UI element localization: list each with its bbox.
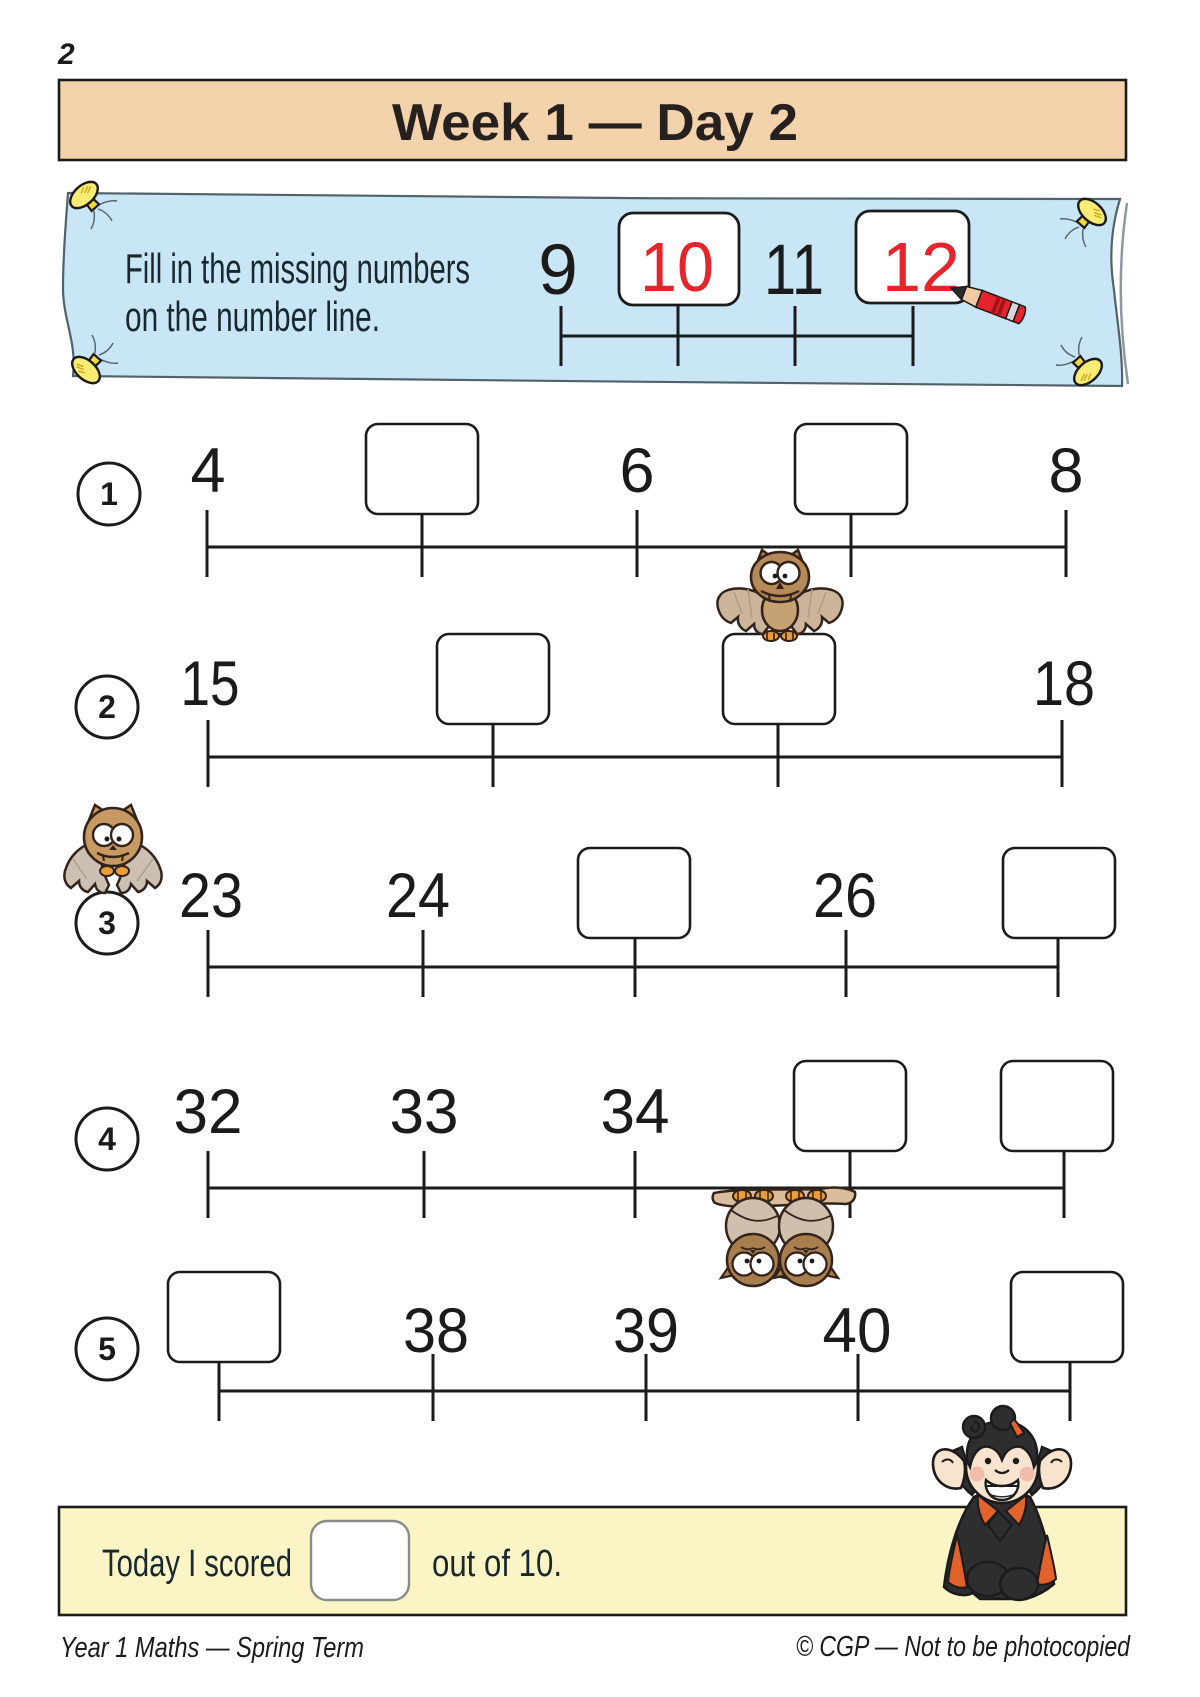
svg-text:4: 4 (98, 1121, 116, 1157)
svg-text:32: 32 (174, 1077, 243, 1147)
svg-text:11: 11 (764, 231, 824, 310)
svg-text:39: 39 (613, 1296, 679, 1366)
svg-text:4: 4 (190, 436, 225, 506)
svg-text:2: 2 (57, 38, 75, 71)
svg-text:24: 24 (386, 861, 450, 931)
svg-text:38: 38 (403, 1296, 469, 1366)
svg-text:3: 3 (98, 905, 116, 941)
svg-text:26: 26 (813, 861, 877, 931)
svg-text:Year 1 Maths — Spring Term: Year 1 Maths — Spring Term (60, 1632, 364, 1664)
svg-text:on the number line.: on the number line. (125, 293, 380, 340)
svg-text:out of 10.: out of 10. (432, 1543, 562, 1585)
svg-text:12: 12 (882, 228, 960, 306)
svg-text:8: 8 (1048, 436, 1083, 506)
svg-text:23: 23 (179, 861, 243, 931)
svg-text:18: 18 (1033, 649, 1095, 719)
svg-text:34: 34 (601, 1077, 670, 1147)
svg-text:1: 1 (100, 476, 118, 512)
svg-text:9: 9 (538, 231, 578, 310)
svg-text:Today I scored: Today I scored (102, 1543, 292, 1585)
svg-text:© CGP — Not to be photocopied: © CGP — Not to be photocopied (796, 1631, 1131, 1663)
svg-text:15: 15 (181, 649, 240, 719)
svg-text:40: 40 (823, 1296, 892, 1366)
svg-text:2: 2 (98, 689, 116, 725)
svg-text:33: 33 (390, 1077, 459, 1147)
svg-text:5: 5 (98, 1331, 116, 1367)
svg-text:6: 6 (619, 436, 654, 506)
svg-text:Fill in the missing numbers: Fill in the missing numbers (125, 245, 470, 292)
svg-text:10: 10 (640, 228, 714, 306)
svg-text:Week 1 — Day 2: Week 1 — Day 2 (392, 94, 798, 152)
